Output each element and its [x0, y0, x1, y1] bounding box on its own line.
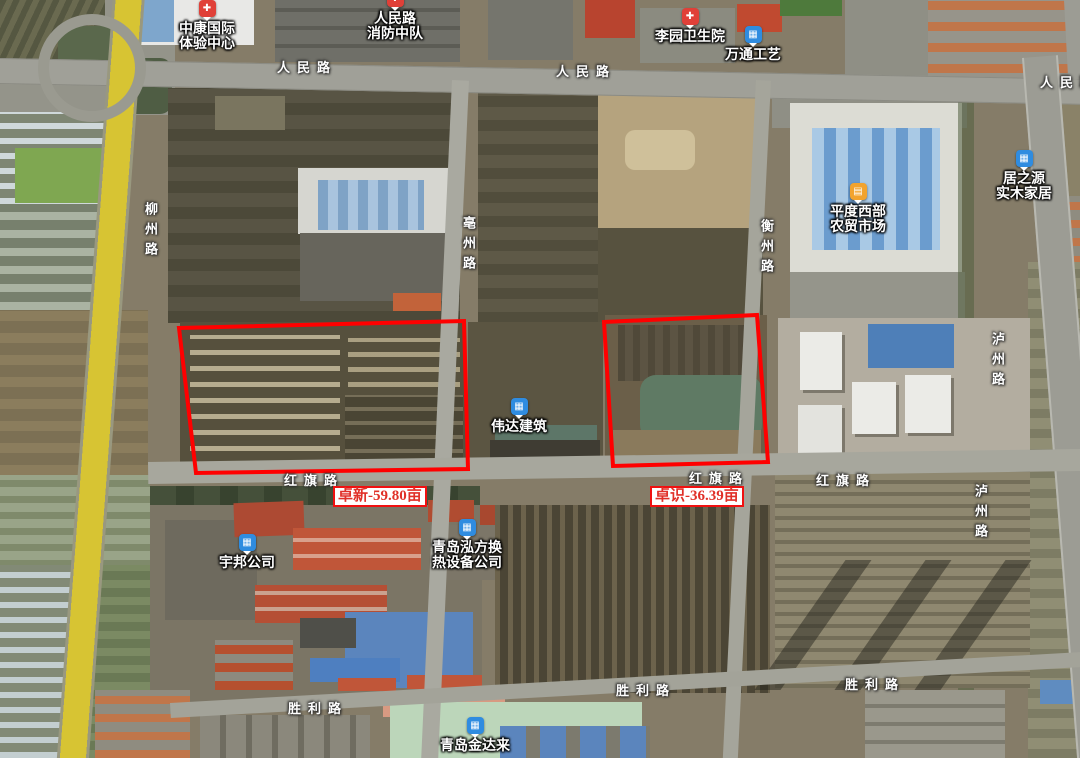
poi-label: 伟达建筑 — [491, 419, 547, 434]
poi-label: 李园卫生院 — [655, 29, 725, 44]
company-building-icon: ▦ — [467, 717, 484, 734]
poi-label: 中康国际体验中心 — [179, 21, 235, 51]
road-label-hongqi-3: 红旗路 — [816, 470, 876, 489]
parcel-zhuoxin-outline — [179, 321, 468, 473]
poi-wantong[interactable]: ▦ 万通工艺 — [725, 26, 781, 62]
poi-liyuan[interactable]: ✚ 李园卫生院 — [655, 8, 725, 44]
parcel-outlines — [0, 0, 1080, 758]
company-building-icon: ▦ — [511, 398, 528, 415]
company-building-icon: ▦ — [459, 519, 476, 536]
poi-label: 人民路消防中队 — [367, 11, 423, 41]
fire-station-icon: ✚ — [387, 0, 404, 7]
poi-nongmao[interactable]: ▤ 平度西部农贸市场 — [830, 183, 886, 234]
parcel-zhuoshi-outline — [604, 315, 768, 466]
poi-zhongkang[interactable]: ✚ 中康国际体验中心 — [179, 0, 235, 51]
poi-xiaofang[interactable]: ✚ 人民路消防中队 — [367, 0, 423, 41]
road-label-hongqi-2: 红旗路 — [689, 468, 749, 487]
road-label-luzhou-1: 泸州路 — [988, 332, 1007, 392]
poi-label: 居之源实木家居 — [996, 171, 1052, 201]
road-label-shengli-2: 胜利路 — [616, 680, 676, 699]
hospital-cross-icon: ✚ — [199, 0, 216, 17]
poi-weida[interactable]: ▦ 伟达建筑 — [491, 398, 547, 434]
hospital-cross-icon: ✚ — [682, 8, 699, 25]
poi-label: 万通工艺 — [725, 47, 781, 62]
poi-label: 平度西部农贸市场 — [830, 204, 886, 234]
company-building-icon: ▦ — [239, 534, 256, 551]
poi-jindalai[interactable]: ▦ 青岛金达来 — [440, 717, 510, 753]
road-label-renmin-1: 人民路 — [277, 57, 337, 76]
poi-label: 青岛泓方换热设备公司 — [432, 540, 502, 570]
poi-label: 宇邦公司 — [219, 555, 275, 570]
road-label-bozhou: 亳州路 — [459, 216, 478, 276]
road-label-liuzhou: 柳州路 — [141, 202, 160, 262]
poi-yubang[interactable]: ▦ 宇邦公司 — [219, 534, 275, 570]
satellite-map[interactable]: 人民路 人民路 人民路 柳州路 亳州路 衡州路 泸州路 泸州路 红旗路 红旗路 … — [0, 0, 1080, 758]
road-label-luzhou-2: 泸州路 — [971, 484, 990, 544]
road-label-shengli-1: 胜利路 — [288, 698, 348, 717]
market-bag-icon: ▤ — [850, 183, 867, 200]
parcel-label-zhuoxin: 卓新-59.80亩 — [333, 486, 427, 507]
poi-hongfang[interactable]: ▦ 青岛泓方换热设备公司 — [432, 519, 502, 570]
company-building-icon: ▦ — [745, 26, 762, 43]
road-label-renmin-2: 人民路 — [556, 61, 616, 80]
poi-label: 青岛金达来 — [440, 738, 510, 753]
poi-juzhiyuan[interactable]: ▦ 居之源实木家居 — [996, 150, 1052, 201]
furniture-store-icon: ▦ — [1016, 150, 1033, 167]
road-label-shengli-3: 胜利路 — [845, 674, 905, 693]
road-label-hengzhou: 衡州路 — [757, 219, 776, 279]
road-label-renmin-3: 人民路 — [1040, 72, 1080, 91]
parcel-label-zhuoshi: 卓识-36.39亩 — [650, 486, 744, 507]
